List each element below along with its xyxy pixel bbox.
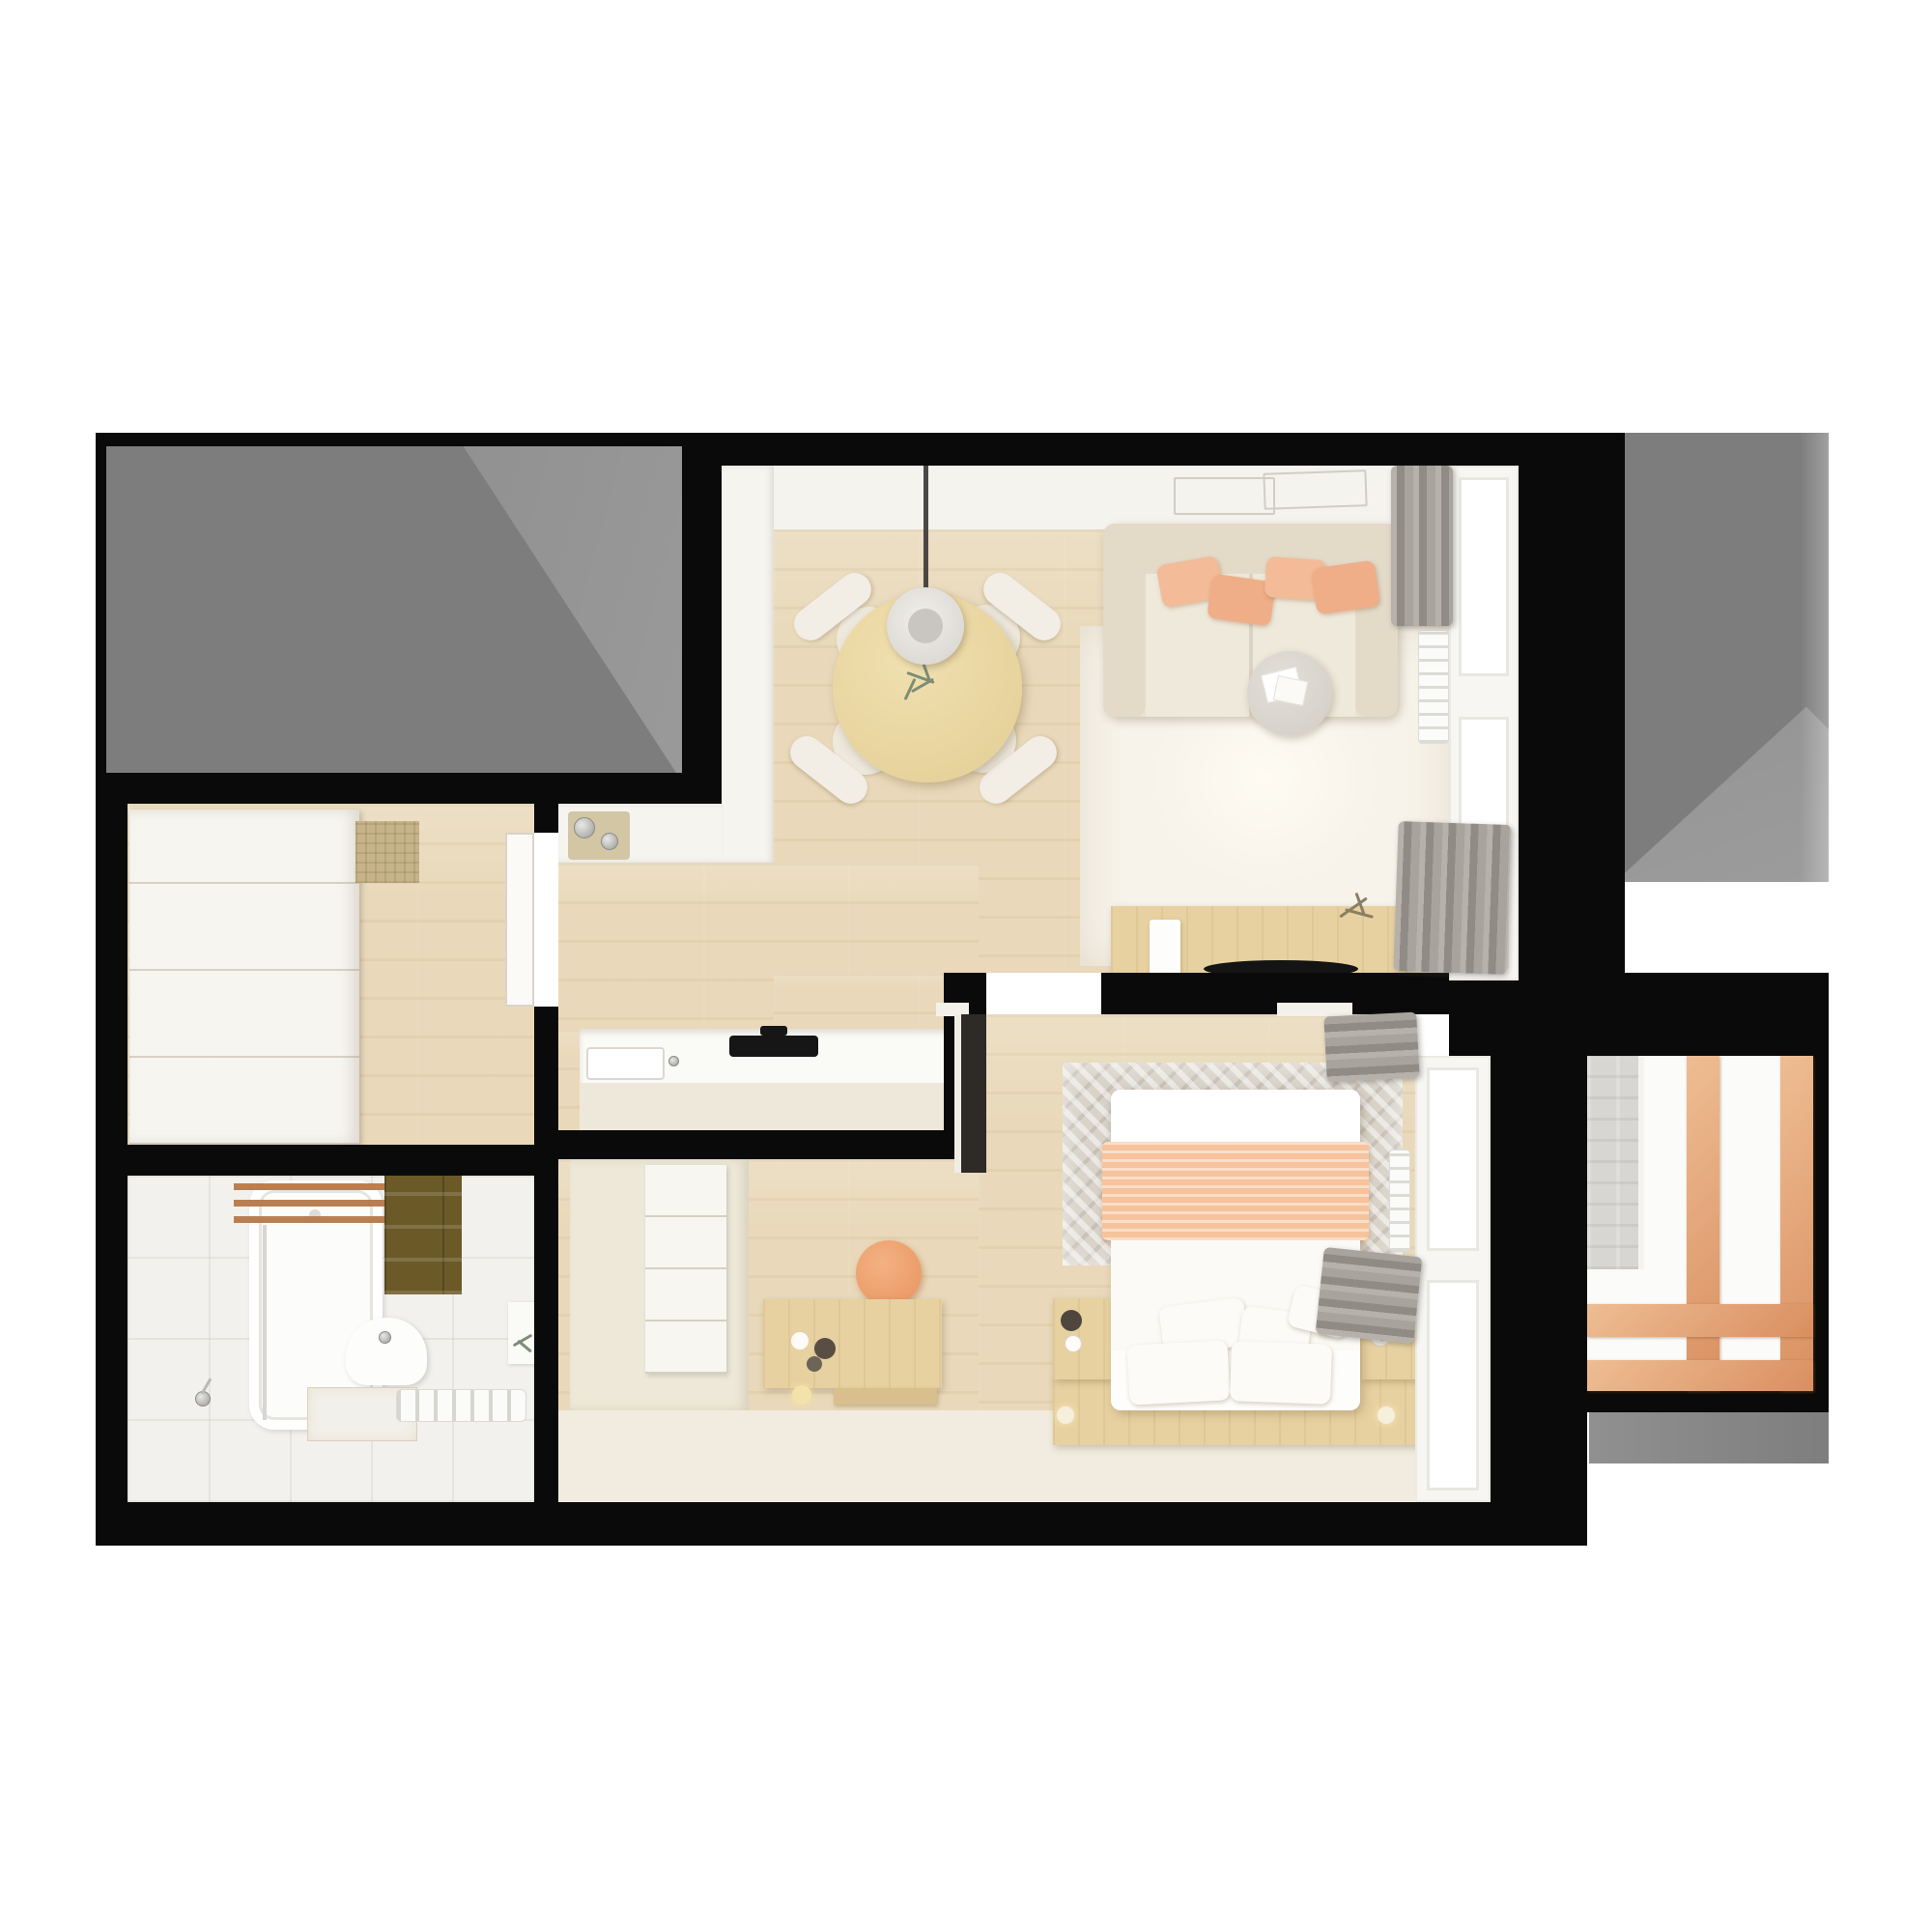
- wall-center-lower: [534, 1007, 558, 1546]
- nightstand-left: [1053, 1298, 1111, 1379]
- bedroom-radiator: [1389, 1150, 1410, 1252]
- balcony-window-frame-right: [1780, 1056, 1813, 1391]
- adjacent-area-bottom-right: [1589, 1412, 1829, 1463]
- olive-towel: [384, 1173, 462, 1294]
- bed-pillow: [1230, 1341, 1332, 1405]
- curtain-bedroom-bottom: [1316, 1247, 1423, 1344]
- wall-balcony-bottom: [1587, 1391, 1813, 1412]
- wall-art-frame: [1174, 477, 1275, 515]
- nightstand-decor: [1061, 1310, 1082, 1331]
- kitchen-sink: [586, 1047, 665, 1080]
- wall-grayblock-right: [682, 433, 722, 773]
- wall-bedroom-right: [1491, 1056, 1587, 1546]
- adjacent-area-edge: [1625, 433, 1829, 882]
- wall-kitchen-south: [534, 1130, 979, 1159]
- bed-sheet-fold: [1111, 1090, 1360, 1142]
- balcony-window-sill: [1587, 1360, 1813, 1391]
- woven-mat: [355, 821, 419, 883]
- wall-right-mid: [1449, 973, 1829, 1056]
- wall-balcony-right: [1813, 1056, 1829, 1412]
- living-radiator: [1418, 630, 1449, 744]
- peach-blanket: [1102, 1142, 1369, 1240]
- candle-icon: [792, 1385, 811, 1405]
- hallway-door-open: [505, 833, 534, 1007]
- balcony-window-transom: [1587, 1304, 1813, 1337]
- wall-top: [722, 433, 1519, 466]
- cooktop-handle: [760, 1026, 787, 1036]
- desk-vase: [814, 1338, 836, 1359]
- faucet-icon: [668, 1056, 679, 1066]
- sofa-arm-left: [1103, 524, 1146, 717]
- flush-button-icon: [379, 1331, 391, 1344]
- closet-shelves: [645, 1165, 726, 1374]
- balcony-concrete-wall: [1587, 1056, 1644, 1269]
- corridor-floor-2: [774, 973, 944, 1029]
- bed-pillow: [1126, 1340, 1230, 1405]
- desk-vase: [807, 1356, 822, 1372]
- bedroom-window-glass: [1427, 1067, 1479, 1251]
- wall-hall-north: [96, 773, 722, 804]
- spotlight-icon: [574, 817, 595, 838]
- kitchen-floor-sliver: [558, 1029, 580, 1130]
- towel-radiator: [396, 1389, 526, 1422]
- peach-stool: [856, 1240, 922, 1306]
- balcony-window-mullion: [1687, 1056, 1719, 1391]
- wall-top-thin: [96, 433, 722, 446]
- curtain-bedroom-top: [1323, 1012, 1419, 1083]
- toilet: [346, 1318, 427, 1385]
- bedroom-door-open: [961, 1014, 986, 1173]
- bedroom-door-frame: [954, 1014, 961, 1173]
- floor-plan: [0, 0, 1932, 1932]
- living-west-wall-band: [722, 466, 774, 863]
- wooden-slat-shelf: [234, 1180, 404, 1223]
- wall-hall-bath: [96, 1145, 534, 1176]
- cooktop: [729, 1036, 818, 1057]
- console-cloth: [1150, 920, 1180, 976]
- shower-glass: [263, 1225, 267, 1420]
- floor-lamp-icon: [1057, 1406, 1074, 1424]
- hallway-dresser: [129, 810, 359, 1145]
- peach-pillow: [1311, 560, 1380, 615]
- wall-art-frame: [1263, 469, 1367, 510]
- curtain-living-top: [1391, 466, 1453, 626]
- window-return: [1277, 1003, 1352, 1016]
- wall-bottom: [96, 1502, 1587, 1546]
- desk-board: [834, 1388, 937, 1405]
- spotlight-icon: [601, 833, 618, 850]
- desk-decor: [791, 1332, 809, 1350]
- kitchen-counter-lower: [580, 1083, 966, 1130]
- pendant-lamp-inner: [908, 609, 943, 643]
- living-window-glass: [1459, 477, 1509, 676]
- floor-lamp-icon: [1378, 1406, 1395, 1424]
- curtain-living-bottom: [1393, 821, 1511, 975]
- wall-center-upper: [534, 804, 558, 833]
- nightstand-decor: [1065, 1335, 1082, 1352]
- bedroom-window-glass: [1427, 1280, 1479, 1491]
- desk: [763, 1299, 942, 1388]
- wall-right-upper: [1519, 433, 1625, 973]
